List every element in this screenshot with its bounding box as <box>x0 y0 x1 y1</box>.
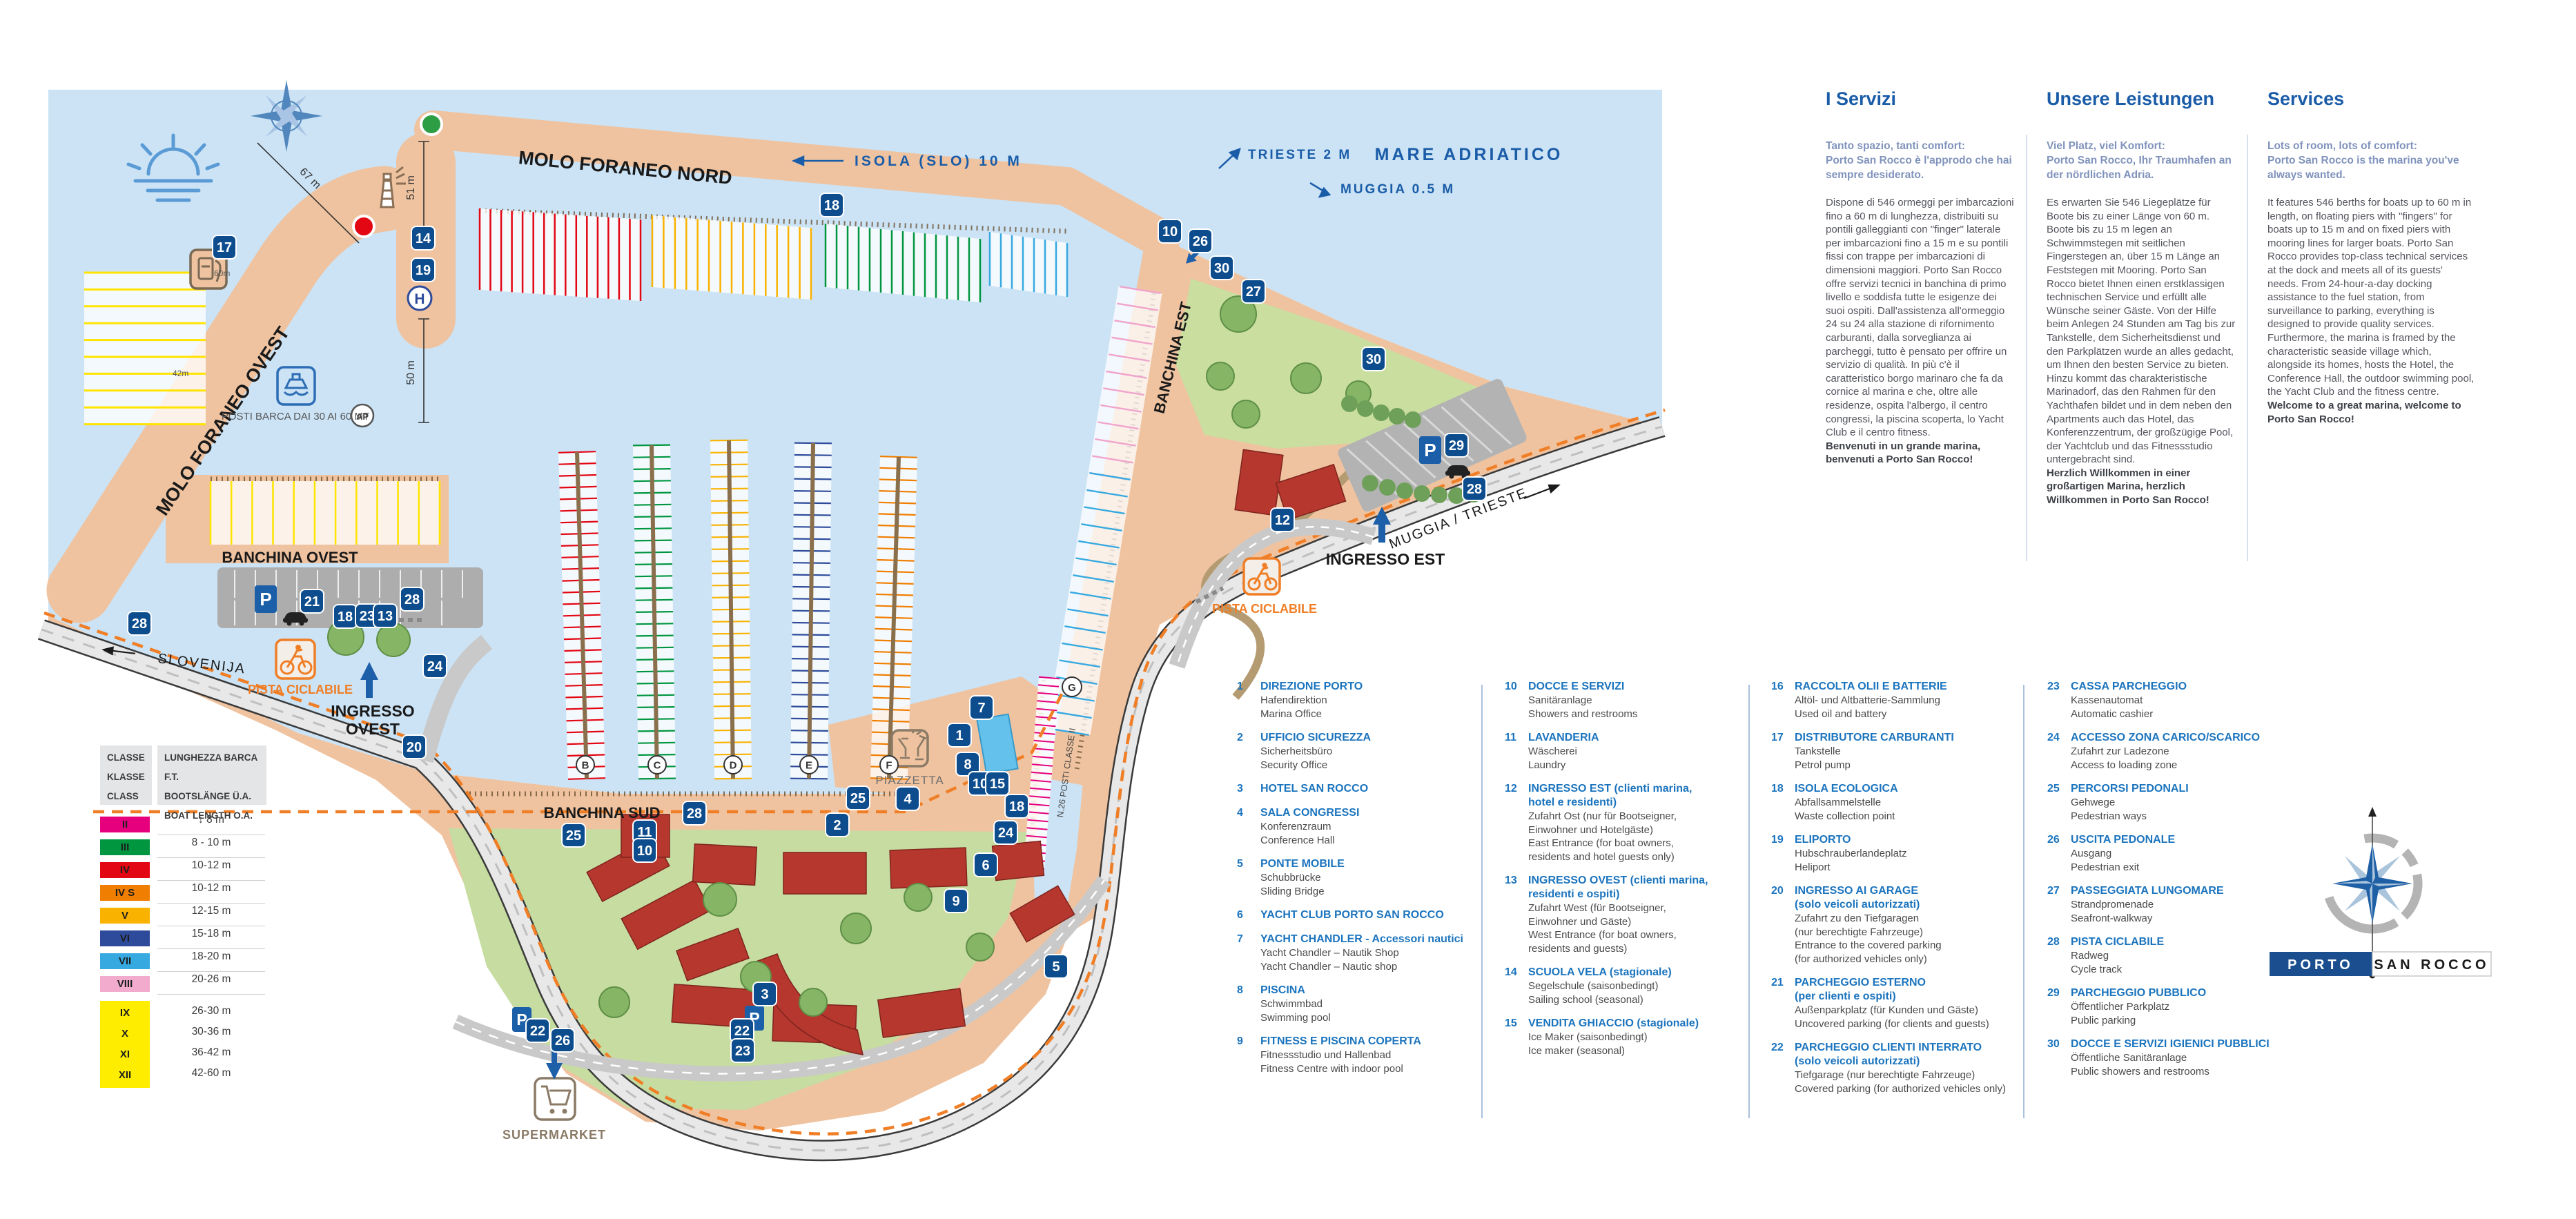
legend-item-title: USCITA PEDONALE <box>2071 833 2296 847</box>
legend-item-3: 3HOTEL SAN ROCCO <box>1237 782 1472 796</box>
legend-item-translation: Public showers and restrooms <box>2071 1065 2296 1079</box>
svg-text:P: P <box>260 589 271 609</box>
map-badge-1: 1 <box>948 723 971 747</box>
legend-item-20: 20INGRESSO AI GARAGE(solo veicoli autori… <box>1771 884 2016 966</box>
legend-item-translation: Conference Hall <box>1260 834 1472 848</box>
legend-item-title: ACCESSO ZONA CARICO/SCARICO <box>2071 731 2296 745</box>
map-badge-14: 14 <box>411 226 435 250</box>
label-banchina-sud: BANCHINA SUD <box>543 804 660 821</box>
legend-item-translation: Entrance to the covered parking <box>1795 939 2016 953</box>
svg-text:30: 30 <box>1366 352 1381 367</box>
svg-text:15: 15 <box>990 777 1005 792</box>
legend-item-title: DOCCE E SERVIZI <box>1528 680 1742 694</box>
label-60m: 60m <box>214 269 230 278</box>
label-42m: 42m <box>173 369 188 378</box>
legend-item-title: YACHT CLUB PORTO SAN ROCCO <box>1260 908 1472 922</box>
legend-item-7: 7YACHT CHANDLER - Accessori nauticiYacht… <box>1237 933 1472 973</box>
ap-letter: AP <box>356 411 369 422</box>
legend-item-translation: Außenparkplatz (für Kunden und Gäste) <box>1795 1004 2016 1017</box>
legend-item-title: LAVANDERIA <box>1528 731 1742 745</box>
pontoon-letter-C: C <box>648 756 666 774</box>
legend-item-translation: Sicherheitsbüro <box>1260 745 1472 759</box>
legend-item-number: 10 <box>1505 680 1528 721</box>
legend-item-8: 8PISCINASchwimmbadSwimming pool <box>1237 984 1472 1024</box>
legend-item-title2: residenti e ospiti) <box>1528 888 1742 901</box>
label-pista-ciclabile-west: PISTA CICLABILE <box>248 683 353 696</box>
legend-item-title: INGRESSO OVEST (clienti marina, <box>1528 874 1742 888</box>
svg-text:28: 28 <box>404 592 420 607</box>
legend-item-16: 16RACCOLTA OLII E BATTERIEAltöl- und Alt… <box>1771 680 2016 721</box>
cyclist-icon-east <box>1244 558 1280 594</box>
legend-item-title: DOCCE E SERVIZI IGIENICI PUBBLICI <box>2071 1037 2296 1051</box>
legend-item-30: 30DOCCE E SERVIZI IGIENICI PUBBLICIÖffen… <box>2047 1037 2296 1078</box>
legend-item-translation: Used oil and battery <box>1795 708 2016 721</box>
label-ingresso-est: INGRESSO EST <box>1326 550 1445 568</box>
class-swatch-II: II <box>100 817 150 832</box>
class-swatch-VI: VI <box>100 930 150 946</box>
legend-column-1: 1DIREZIONE PORTOHafendirektionMarina Off… <box>1237 680 1472 1086</box>
legend-item-title: PASSEGGIATA LUNGOMARE <box>2071 884 2296 898</box>
info-closing-en: Welcome to a great marina, welcome to Po… <box>2267 399 2475 426</box>
legend-item-number: 25 <box>2047 782 2071 823</box>
legend-item-number: 18 <box>1771 782 1795 823</box>
legend-item-title: DIREZIONE PORTO <box>1260 680 1472 694</box>
legend-column-2: 10DOCCE E SERVIZISanitäranlageShowers an… <box>1505 680 1742 1068</box>
legend-item-number: 8 <box>1237 984 1260 1024</box>
legend-item-translation: Yacht Chandler – Nautik Shop <box>1260 946 1472 960</box>
map-badge-30: 30 <box>1210 256 1233 280</box>
legend-item-translation: Ice maker (seasonal) <box>1528 1044 1742 1058</box>
legend-item-translation: Ausgang <box>2071 847 2296 861</box>
legend-item-title2: hotel e residenti) <box>1528 796 1742 810</box>
label-ingresso-ovest-2: OVEST <box>346 720 400 738</box>
logo-compass-star <box>2332 843 2412 924</box>
class-swatch-IV S: IV S <box>100 885 150 901</box>
class-length-VII: 18-20 m <box>157 950 265 972</box>
svg-text:11: 11 <box>637 825 652 840</box>
label-isola: ISOLA (SLO) 10 M <box>855 153 1022 169</box>
legend-item-translation: Heliport <box>1795 861 2016 875</box>
legend-item-title: PARCHEGGIO ESTERNO <box>1795 976 2016 990</box>
legend-item-translation: Tankstelle <box>1795 745 2016 759</box>
legend-item-number: 7 <box>1237 933 1260 973</box>
label-supermarket: SUPERMARKET <box>502 1128 606 1142</box>
legend-item-number: 28 <box>2047 935 2071 976</box>
class-length-IV S: 10-12 m <box>157 882 265 904</box>
legend-item-number: 4 <box>1237 806 1260 847</box>
map-badge-30: 30 <box>1362 347 1385 371</box>
legend-item-translation: Ice Maker (saisonbedingt) <box>1528 1031 1742 1044</box>
svg-text:C: C <box>654 760 661 772</box>
map-badge-9: 9 <box>944 889 968 913</box>
legend-item-translation: Marina Office <box>1260 708 1472 721</box>
legend-item-title2: (solo veicoli autorizzati) <box>1795 1055 2016 1069</box>
label-muggia: MUGGIA 0.5 M <box>1340 182 1455 197</box>
svg-text:20: 20 <box>407 740 422 755</box>
legend-item-24: 24ACCESSO ZONA CARICO/SCARICOZufahrt zur… <box>2047 731 2296 772</box>
legend-item-translation: Zufahrt Ost (nur für Bootseigner, <box>1528 810 1742 823</box>
legend-item-translation: Tiefgarage (nur berechtigte Fahrzeuge) <box>1795 1069 2016 1082</box>
info-intro-it: Tanto spazio, tanti comfort: Porto San R… <box>1826 139 2016 182</box>
map-badge-15: 15 <box>986 772 1009 795</box>
legend-item-translation: Kassenautomat <box>2071 694 2296 708</box>
legend-item-title: DISTRIBUTORE CARBURANTI <box>1795 731 2016 745</box>
legend-item-title: ELIPORTO <box>1795 833 2016 847</box>
legend-item-22: 22PARCHEGGIO CLIENTI INTERRATO(solo veic… <box>1771 1041 2016 1095</box>
svg-text:18: 18 <box>338 609 353 625</box>
label-trieste: TRIESTE 2 M <box>1248 148 1352 162</box>
map-badge-10: 10 <box>633 839 656 862</box>
legend-item-title: PARCHEGGIO PUBBLICO <box>2071 986 2296 1000</box>
logo-sanrocco-text: SAN ROCCO <box>2374 957 2489 973</box>
map-badge-13: 13 <box>373 604 397 627</box>
map-badge-18: 18 <box>1005 794 1028 818</box>
info-intro-de: Viel Platz, viel Komfort: Porto San Rocc… <box>2047 139 2237 182</box>
class-header-right: LUNGHEZZA BARCA F.T.BOOTSLÄNGE Ü.A.BOAT … <box>157 745 266 805</box>
class-swatch-III: III <box>100 839 150 855</box>
legend-item-translation: Waste collection point <box>1795 810 2016 823</box>
svg-text:26: 26 <box>555 1033 570 1049</box>
map-badge-29: 29 <box>1445 433 1468 457</box>
svg-text:25: 25 <box>850 791 866 806</box>
legend-item-translation: Zufahrt zu den Tiefgaragen <box>1795 912 2016 926</box>
legend-item-number: 6 <box>1237 908 1260 922</box>
legend-item-title: PERCORSI PEDONALI <box>2071 782 2296 796</box>
legend-item-translation: Laundry <box>1528 759 1742 772</box>
legend-item-number: 22 <box>1771 1041 1795 1095</box>
legend-item-17: 17DISTRIBUTORE CARBURANTITankstellePetro… <box>1771 731 2016 772</box>
legend-item-translation: Yacht Chandler – Nautic shop <box>1260 960 1472 974</box>
info-column-en: Services Lots of room, lots of comfort: … <box>2267 88 2475 426</box>
legend-item-title: SCUOLA VELA (stagionale) <box>1528 966 1742 979</box>
legend-divider-1 <box>1481 685 1483 1118</box>
heliport-letter: H <box>414 291 425 307</box>
svg-text:14: 14 <box>416 231 431 246</box>
svg-text:E: E <box>806 760 812 772</box>
pontoon-letter-F: F <box>880 756 898 774</box>
map-badge-20: 20 <box>402 735 426 759</box>
legend-item-title: VENDITA GHIACCIO (stagionale) <box>1528 1017 1742 1031</box>
legend-item-title: PARCHEGGIO CLIENTI INTERRATO <box>1795 1041 2016 1055</box>
map-badge-24: 24 <box>423 654 447 678</box>
map-badge-25: 25 <box>562 823 585 847</box>
legend-item-number: 5 <box>1237 857 1260 898</box>
info-body-it: Dispone di 546 ormeggi per imbarcazioni … <box>1826 196 2016 440</box>
svg-text:28: 28 <box>687 806 702 821</box>
legend-item-translation: (for authorized vehicles only) <box>1795 953 2016 966</box>
legend-item-translation: West Entrance (for boat owners, <box>1528 928 1742 942</box>
class-length-IV: 10-12 m <box>157 859 265 881</box>
legend-item-title: CASSA PARCHEGGIO <box>2071 680 2296 694</box>
class-header-left: CLASSEKLASSECLASS <box>100 745 152 805</box>
svg-text:17: 17 <box>217 240 232 255</box>
map-badge-7: 7 <box>970 696 993 719</box>
svg-text:29: 29 <box>1449 438 1464 454</box>
legend-item-translation: Fitness Centre with indoor pool <box>1260 1062 1472 1076</box>
legend-item-number: 23 <box>2047 680 2071 721</box>
legend-item-translation: Schubbrücke <box>1260 871 1472 885</box>
legend-item-number: 24 <box>2047 731 2071 772</box>
map-badge-23: 23 <box>731 1039 754 1062</box>
map-badge-6: 6 <box>974 853 997 877</box>
g-letter: G <box>1068 682 1076 694</box>
legend-item-translation: Swimming pool <box>1260 1011 1472 1025</box>
info-closing-it: Benvenuti in un grande marina, benvenuti… <box>1826 440 2016 467</box>
legend-item-translation: Pedestrian ways <box>2071 810 2296 823</box>
info-intro-en: Lots of room, lots of comfort: Porto San… <box>2267 139 2475 182</box>
map-badge-26: 26 <box>1189 229 1212 253</box>
map-badge-28: 28 <box>400 587 424 611</box>
legend-item-number: 3 <box>1237 782 1260 796</box>
supermarket-icon <box>535 1078 575 1120</box>
legend-item-number: 1 <box>1237 680 1260 721</box>
svg-text:28: 28 <box>132 616 147 632</box>
legend-item-13: 13INGRESSO OVEST (clienti marina,residen… <box>1505 874 1742 955</box>
svg-text:23: 23 <box>360 609 375 624</box>
legend-item-15: 15VENDITA GHIACCIO (stagionale)Ice Maker… <box>1505 1017 1742 1057</box>
legend-item-21: 21PARCHEGGIO ESTERNO(per clienti e ospit… <box>1771 976 2016 1031</box>
svg-text:7: 7 <box>977 701 985 716</box>
label-posti-barca: POSTI BARCA DAI 30 AI 60 MT <box>222 411 369 422</box>
svg-text:F: F <box>886 760 892 772</box>
svg-text:2: 2 <box>833 818 841 833</box>
cyclist-icon-west <box>276 640 315 679</box>
svg-text:B: B <box>582 760 589 772</box>
map-badge-2: 2 <box>826 813 849 837</box>
legend-item-number: 14 <box>1505 966 1528 1006</box>
svg-text:5: 5 <box>1052 959 1060 975</box>
legend-item-title: INGRESSO AI GARAGE <box>1795 884 2016 898</box>
svg-text:12: 12 <box>1275 513 1290 528</box>
class-swatch-V: V <box>100 908 150 924</box>
svg-text:22: 22 <box>530 1024 545 1039</box>
legend-item-14: 14SCUOLA VELA (stagionale)Segelschule (s… <box>1505 966 1742 1006</box>
legend-item-translation: Fitnessstudio und Hallenbad <box>1260 1049 1472 1062</box>
label-pista-ciclabile-east: PISTA CICLABILE <box>1212 602 1317 616</box>
info-body-en: It features 546 berths for boats up to 6… <box>2267 196 2475 399</box>
legend-divider-3 <box>2023 685 2024 1118</box>
class-length-group: 26-30 m30-36 m36-42 m42-60 m <box>157 1001 265 1084</box>
legend-item-translation: Sliding Bridge <box>1260 885 1472 899</box>
svg-text:10: 10 <box>637 843 652 859</box>
legend-item-1: 1DIREZIONE PORTOHafendirektionMarina Off… <box>1237 680 1472 721</box>
legend-item-translation: Zufahrt West (für Bootseigner, <box>1528 901 1742 915</box>
logo-porto-text: PORTO <box>2287 957 2354 973</box>
legend-item-2: 2UFFICIO SICUREZZASicherheitsbüroSecurit… <box>1237 731 1472 772</box>
legend-item-title: FITNESS E PISCINA COPERTA <box>1260 1035 1472 1049</box>
svg-text:18: 18 <box>1009 799 1024 815</box>
label-banchina-ovest: BANCHINA OVEST <box>222 549 358 566</box>
svg-text:6: 6 <box>982 858 989 873</box>
svg-text:26: 26 <box>1193 234 1208 249</box>
legend-item-number: 20 <box>1771 884 1795 966</box>
pontoon-letter-B: B <box>576 756 594 774</box>
legend-item-4: 4SALA CONGRESSIKonferenzraumConference H… <box>1237 806 1472 847</box>
svg-text:4: 4 <box>904 792 912 807</box>
svg-text:1: 1 <box>955 728 963 743</box>
legend-item-title: YACHT CHANDLER - Accessori nautici <box>1260 933 1472 946</box>
legend-item-translation: Wäscherei <box>1528 745 1742 759</box>
pontoon-letter-D: D <box>724 756 742 774</box>
legend-item-number: 13 <box>1505 874 1528 955</box>
legend-item-number: 26 <box>2047 833 2071 874</box>
legend-item-number: 17 <box>1771 731 1795 772</box>
legend-item-translation: Covered parking (for authorized vehicles… <box>1795 1082 2016 1096</box>
class-swatch-VIII: VIII <box>100 976 150 992</box>
legend-item-27: 27PASSEGGIATA LUNGOMAREStrandpromenadeSe… <box>2047 884 2296 925</box>
legend-item-translation: Automatic cashier <box>2071 708 2296 721</box>
svg-text:23: 23 <box>735 1044 750 1059</box>
legend-item-translation: Sailing school (seasonal) <box>1528 993 1742 1007</box>
legend-item-19: 19ELIPORTOHubschrauberlandeplatzHeliport <box>1771 833 2016 874</box>
legend-item-number: 16 <box>1771 680 1795 721</box>
legend-item-translation: Showers and restrooms <box>1528 708 1742 721</box>
label-51m: 51 m <box>405 175 417 200</box>
legend-item-number: 15 <box>1505 1017 1528 1057</box>
legend-item-5: 5PONTE MOBILESchubbrückeSliding Bridge <box>1237 857 1472 898</box>
legend-item-translation: Seafront-walkway <box>2071 912 2296 926</box>
svg-text:28: 28 <box>1467 482 1482 497</box>
svg-text:25: 25 <box>566 828 581 843</box>
porto-san-rocco-logo: PORTO SAN ROCCO <box>2264 804 2512 1011</box>
map-badge-5: 5 <box>1044 955 1068 978</box>
class-length-VI: 15-18 m <box>157 928 265 949</box>
legend-item-translation: Access to loading zone <box>2071 759 2296 772</box>
legend-column-4: 23CASSA PARCHEGGIOKassenautomatAutomatic… <box>2047 680 2296 1089</box>
svg-text:21: 21 <box>304 594 320 609</box>
legend-item-26: 26USCITA PEDONALEAusgangPedestrian exit <box>2047 833 2296 874</box>
svg-text:9: 9 <box>952 894 959 909</box>
legend-item-title: PISCINA <box>1260 984 1472 997</box>
info-column-de: Unsere Leistungen Viel Platz, viel Komfo… <box>2047 88 2237 507</box>
legend-item-title: HOTEL SAN ROCCO <box>1260 782 1472 796</box>
map-badge-12: 12 <box>1271 508 1294 532</box>
legend-item-translation: Abfallsammelstelle <box>1795 796 2016 810</box>
legend-item-translation: Hubschrauberlandeplatz <box>1795 847 2016 861</box>
legend-item-18: 18ISOLA ECOLOGICAAbfallsammelstelleWaste… <box>1771 782 2016 823</box>
map-badge-22: 22 <box>526 1019 549 1042</box>
class-swatch-group: IXXXIXII <box>100 1001 150 1088</box>
legend-item-number: 2 <box>1237 731 1260 772</box>
map-badge-26: 26 <box>551 1028 574 1052</box>
legend-item-translation: Petrol pump <box>1795 759 2016 772</box>
legend-item-10: 10DOCCE E SERVIZISanitäranlageShowers an… <box>1505 680 1742 721</box>
legend-item-translation: Einwohner und Gäste) <box>1528 915 1742 929</box>
legend-item-6: 6YACHT CLUB PORTO SAN ROCCO <box>1237 908 1472 922</box>
legend-item-title: PISTA CICLABILE <box>2071 935 2296 949</box>
green-buoy <box>421 114 442 135</box>
svg-text:D: D <box>730 760 737 772</box>
map-badge-28: 28 <box>128 612 151 635</box>
legend-item-number: 19 <box>1771 833 1795 874</box>
big-boats-icon <box>277 367 315 404</box>
legend-item-title: PONTE MOBILE <box>1260 857 1472 871</box>
legend-item-9: 9FITNESS E PISCINA COPERTAFitnessstudio … <box>1237 1035 1472 1075</box>
map-badge-27: 27 <box>1242 280 1265 303</box>
legend-item-title: ISOLA ECOLOGICA <box>1795 782 2016 796</box>
legend-item-translation: Segelschule (saisonbedingt) <box>1528 979 1742 993</box>
svg-text:8: 8 <box>964 757 971 772</box>
label-mare: MARE ADRIATICO <box>1375 145 1563 164</box>
legend-item-translation: Schwimmbad <box>1260 997 1472 1011</box>
svg-text:24: 24 <box>998 826 1014 841</box>
legend-item-12: 12INGRESSO EST (clienti marina,hotel e r… <box>1505 782 1742 864</box>
svg-text:3: 3 <box>761 987 768 1002</box>
svg-text:22: 22 <box>734 1024 750 1039</box>
svg-text:19: 19 <box>416 263 431 278</box>
svg-text:24: 24 <box>427 659 443 674</box>
legend-item-translation: Hafendirektion <box>1260 694 1472 708</box>
legend-item-translation: (nur berechtigte Fahrzeuge) <box>1795 926 2016 939</box>
legend-item-title2: (per clienti e ospiti) <box>1795 990 2016 1004</box>
legend-column-3: 16RACCOLTA OLII E BATTERIEAltöl- und Alt… <box>1771 680 2016 1106</box>
logo-north-arrow <box>2368 807 2377 817</box>
legend-item-translation: Sanitäranlage <box>1528 694 1742 708</box>
legend-item-number: 27 <box>2047 884 2071 925</box>
map-badge-19: 19 <box>411 258 435 282</box>
svg-text:10: 10 <box>1162 224 1178 240</box>
legend-item-number: 21 <box>1771 976 1795 1031</box>
class-length-II: ↓ 8 m <box>157 814 265 835</box>
legend-item-translation: Security Office <box>1260 759 1472 772</box>
legend-item-28: 28PISTA CICLABILERadwegCycle track <box>2047 935 2296 976</box>
legend-item-number: 9 <box>1237 1035 1260 1075</box>
map-badge-28: 28 <box>683 801 706 825</box>
pontoon-letter-E: E <box>800 756 818 774</box>
svg-text:P: P <box>1424 440 1436 460</box>
info-column-it: I Servizi Tanto spazio, tanti comfort: P… <box>1826 88 2016 467</box>
info-divider-1 <box>2026 135 2027 561</box>
info-title-en: Services <box>2267 88 2475 110</box>
map-badge-18: 18 <box>333 605 357 628</box>
legend-item-title: UFFICIO SICUREZZA <box>1260 731 1472 745</box>
info-title-it: I Servizi <box>1826 88 2016 110</box>
legend-divider-2 <box>1748 685 1750 1118</box>
legend-item-translation: East Entrance (for boat owners, <box>1528 837 1742 850</box>
marina-map-poster: P P P P BCDEF ISOLA (SLO) 10 M TRIESTE 2… <box>0 0 2576 1219</box>
legend-item-translation: Altöl- und Altbatterie-Sammlung <box>1795 694 2016 708</box>
legend-item-translation: residents and guests) <box>1528 942 1742 956</box>
info-title-de: Unsere Leistungen <box>2047 88 2237 110</box>
legend-item-23: 23CASSA PARCHEGGIOKassenautomatAutomatic… <box>2047 680 2296 721</box>
legend-item-translation: Zufahrt zur Ladezone <box>2071 745 2296 759</box>
class-swatch-VII: VII <box>100 953 150 969</box>
legend-item-translation: Konferenzraum <box>1260 820 1472 834</box>
class-swatch-IV: IV <box>100 862 150 878</box>
legend-item-title: RACCOLTA OLII E BATTERIE <box>1795 680 2016 694</box>
legend-item-number: 30 <box>2047 1037 2071 1078</box>
info-divider-2 <box>2247 135 2248 561</box>
red-buoy <box>353 216 374 237</box>
label-50m: 50 m <box>405 360 417 385</box>
svg-text:30: 30 <box>1214 261 1229 276</box>
class-length-III: 8 - 10 m <box>157 837 265 858</box>
legend-item-number: 29 <box>2047 986 2071 1027</box>
label-piazzetta: PIAZZETTA <box>875 774 944 787</box>
class-length-VIII: 20-26 m <box>157 973 265 995</box>
map-badge-10: 10 <box>1158 220 1182 243</box>
svg-text:18: 18 <box>824 198 839 213</box>
info-body-de: Es erwarten Sie 546 Liegeplätze für Boot… <box>2047 196 2237 467</box>
map-badge-18: 18 <box>820 193 843 217</box>
legend-item-title: INGRESSO EST (clienti marina, <box>1528 782 1742 796</box>
legend-item-translation: Einwohner und Hotelgäste) <box>1528 823 1742 837</box>
legend-item-translation: Öffentliche Sanitäranlage <box>2071 1051 2296 1065</box>
legend-item-11: 11LAVANDERIAWäschereiLaundry <box>1505 731 1742 772</box>
info-closing-de: Herzlich Willkommen in einer großartigen… <box>2047 467 2237 507</box>
legend-item-translation: Pedestrian exit <box>2071 861 2296 875</box>
legend-item-translation: Radweg <box>2071 949 2296 963</box>
